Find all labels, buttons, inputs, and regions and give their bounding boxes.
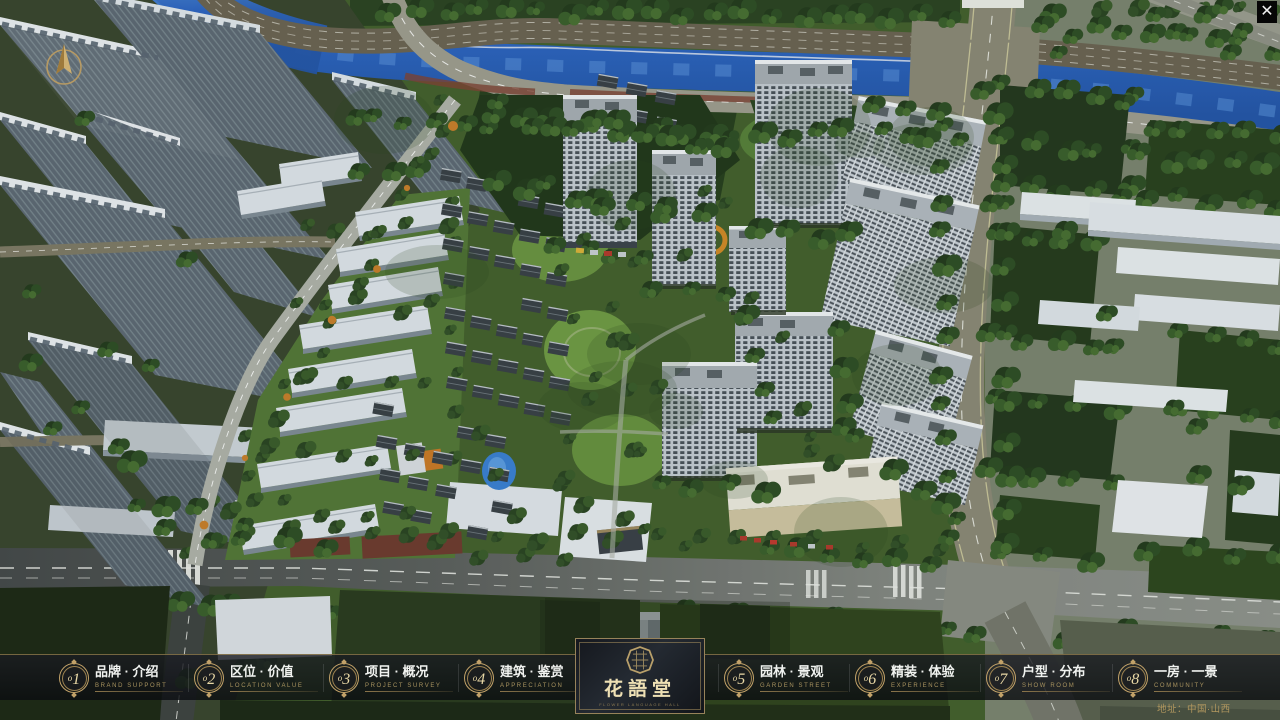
svg-text:花語堂: 花語堂 xyxy=(604,677,676,700)
svg-text:FLOWER LANGUAGE HALL: FLOWER LANGUAGE HALL xyxy=(599,702,681,707)
